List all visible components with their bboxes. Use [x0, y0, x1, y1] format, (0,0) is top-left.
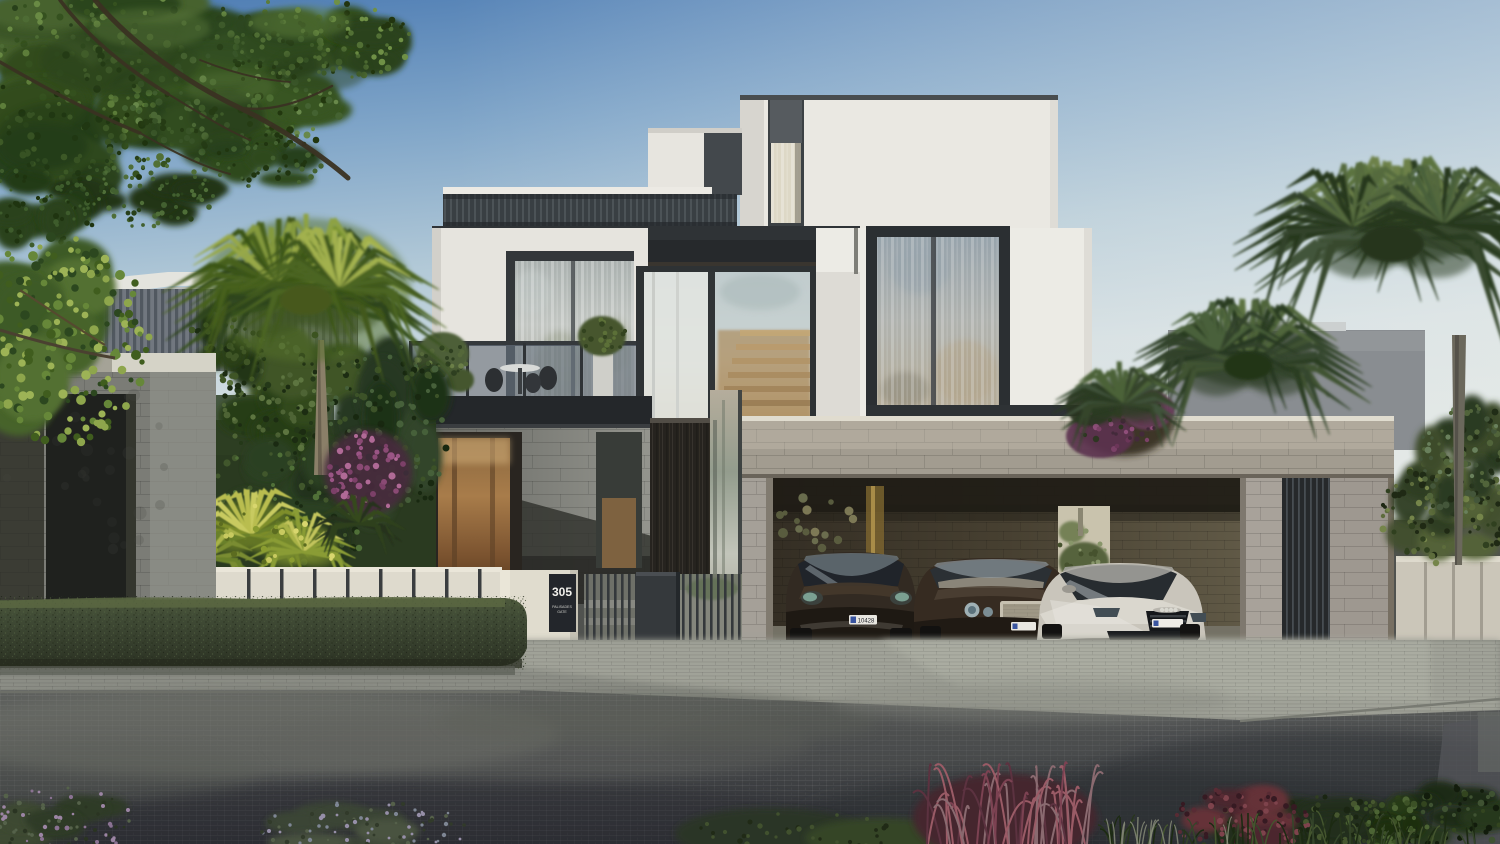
svg-text:GATE: GATE	[557, 610, 567, 614]
svg-text:10428: 10428	[858, 619, 875, 625]
svg-text:PALISADES: PALISADES	[552, 605, 572, 609]
svg-text:305: 305	[552, 585, 572, 599]
